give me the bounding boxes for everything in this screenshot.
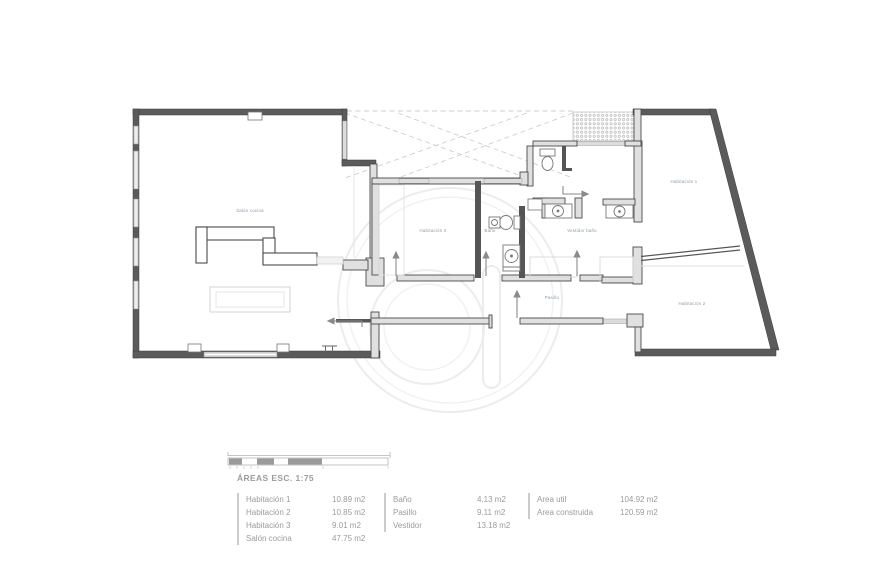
area-label: Area construida (537, 506, 620, 519)
door-arrow-entrance (514, 291, 520, 318)
door-arrow-bath (563, 186, 588, 197)
label-hab3: Habitación 3 (420, 228, 447, 233)
door-arrow-hab3 (393, 252, 399, 276)
area-row: Habitación 1 10.89 m2 (246, 493, 365, 506)
area-row: Vestidor 13.18 m2 (393, 519, 510, 532)
area-row: Pasillo 9.11 m2 (393, 506, 510, 519)
sink-icon-left (545, 204, 572, 218)
area-row: Salón cocina 47.75 m2 (246, 532, 365, 545)
area-label: Habitación 2 (246, 506, 332, 519)
kitchen-counter (196, 227, 317, 265)
area-value: 13.18 m2 (477, 519, 510, 532)
label-bano: Baño (484, 228, 495, 233)
label-hab2: Habitación 2 (679, 301, 706, 306)
area-group-totals: Area util 104.92 m2 Area construida 120.… (528, 493, 658, 519)
area-value: 4.13 m2 (477, 493, 506, 506)
interior-walls (343, 109, 643, 358)
area-row: Area util 104.92 m2 (537, 493, 658, 506)
scale-bar (228, 452, 390, 469)
area-value: 10.85 m2 (332, 506, 365, 519)
area-value: 120.59 m2 (620, 506, 658, 519)
area-value: 9.01 m2 (332, 519, 361, 532)
toilet-icon-vestidor (540, 149, 555, 171)
area-row: Habitación 2 10.85 m2 (246, 506, 365, 519)
label-salon: Salón cocina (236, 208, 264, 213)
area-value: 104.92 m2 (620, 493, 658, 506)
area-label: Habitación 3 (246, 519, 332, 532)
areas-title: ÁREAS ESC. 1:75 (237, 473, 314, 483)
area-label: Salón cocina (246, 532, 332, 545)
area-label: Area util (537, 493, 620, 506)
washer-icon (503, 245, 520, 271)
area-row: Baño 4.13 m2 (393, 493, 510, 506)
area-value: 10.89 m2 (332, 493, 365, 506)
diagonal-partition (641, 246, 744, 266)
door-arrow-vestidor (574, 251, 580, 276)
toilet-icon-bano (500, 216, 521, 230)
area-row: Habitación 3 9.01 m2 (246, 519, 365, 532)
area-value: 9.11 m2 (477, 506, 505, 519)
sink-icon-right (606, 205, 633, 218)
patio-hatch (573, 112, 636, 141)
label-pasillo: Pasillo (545, 295, 560, 300)
area-group-rooms: Habitación 1 10.89 m2 Habitación 2 10.85… (237, 493, 365, 545)
area-value: 47.75 m2 (332, 532, 365, 545)
area-label: Baño (393, 493, 477, 506)
area-label: Vestidor (393, 519, 477, 532)
label-hab1: Habitación 1 (671, 179, 698, 184)
area-label: Habitación 1 (246, 493, 332, 506)
kitchen-island (210, 287, 290, 312)
floor-plan-drawing: Salón cocina Habitación 3 Baño Vestidor … (0, 0, 883, 569)
area-group-service: Baño 4.13 m2 Pasillo 9.11 m2 Vestidor 13… (384, 493, 510, 532)
area-label: Pasillo (393, 506, 477, 519)
area-row: Area construida 120.59 m2 (537, 506, 658, 519)
kitchen-counter-joint (317, 257, 343, 264)
floor-plan-page: Salón cocina Habitación 3 Baño Vestidor … (0, 0, 883, 569)
bidet-icon (489, 217, 500, 228)
label-vestidor: Vestidor baño (567, 228, 597, 233)
